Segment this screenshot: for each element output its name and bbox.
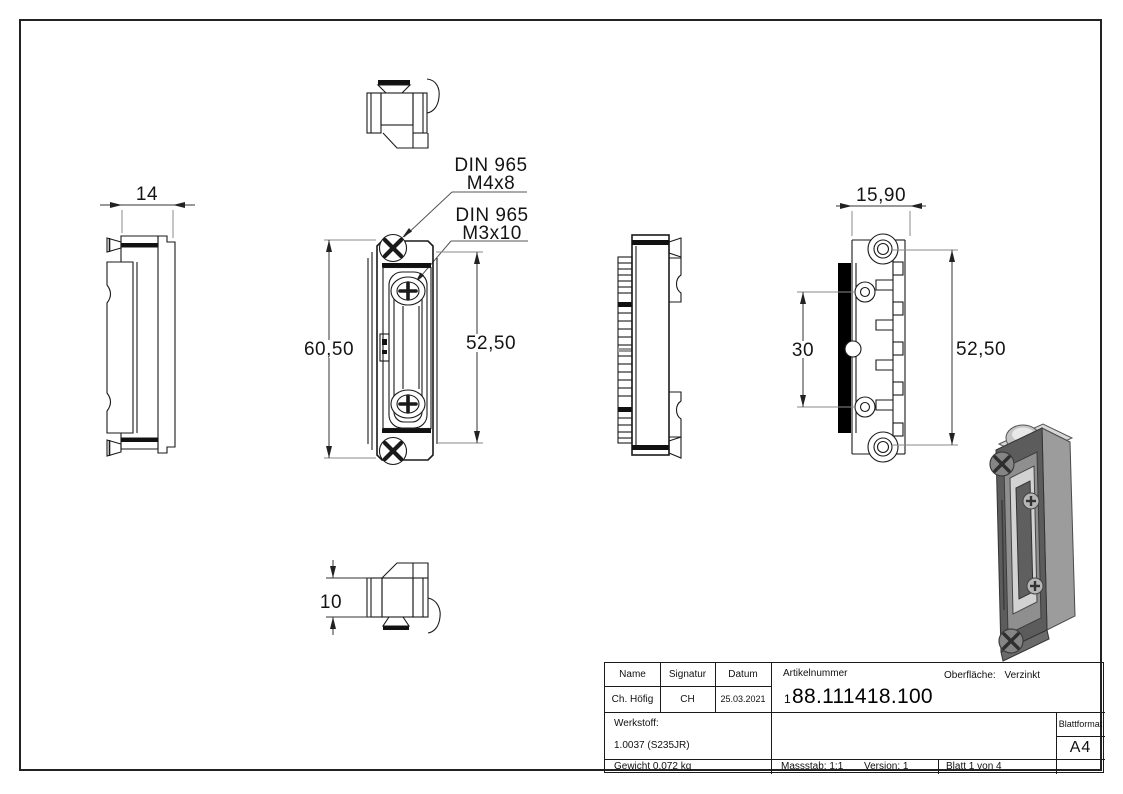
date-header: Datum [715, 663, 771, 686]
iso-screw-bottom-icon [999, 629, 1023, 653]
scale-value: Massstab: 1:1 [781, 759, 843, 774]
material-value: 1.0037 (S235JR) [614, 740, 690, 751]
side-view-left [107, 236, 175, 456]
material-label: Werkstoff: [614, 718, 659, 729]
back-view [838, 234, 905, 462]
sheet-format-value: A4 [1056, 736, 1105, 759]
drawing-page: 14 DIN 965 M4x8 DIN 965 M3x10 [0, 0, 1123, 794]
surface-label: Oberfläche: [944, 670, 996, 681]
title-block: Name Signatur Datum Ch. Höfig CH 25.03.2… [604, 662, 1104, 773]
sheet-format-label: Blattformat [1056, 712, 1105, 736]
oval-screw-bottom-icon [391, 390, 425, 418]
dim-bottom-height-label: 10 [320, 592, 342, 613]
mount-screw-bottom-icon [380, 438, 407, 465]
surface-value: Verzinkt [1004, 670, 1040, 681]
iso-screw-top-icon [990, 452, 1014, 476]
dim-front-screw-spacing-label: 52,50 [466, 333, 516, 354]
dim-back-width: 15,90 [836, 185, 926, 236]
isometric-view [990, 424, 1075, 661]
dim-bottom-height: 10 [320, 560, 371, 635]
bottom-view [367, 563, 440, 633]
dim-side-width: 14 [100, 184, 195, 238]
din-m4-line2: M4x8 [467, 173, 515, 194]
signature-header: Signatur [660, 663, 715, 686]
dim-side-width-label: 14 [136, 184, 158, 205]
side-view-right [618, 235, 681, 458]
dim-back-screw-spacing-label: 52,50 [956, 339, 1006, 360]
oval-screw-top-icon [391, 277, 425, 305]
mount-screw-top-icon [380, 235, 407, 262]
article-number-main: 88.111418.100 [792, 685, 933, 709]
dim-front-screw-spacing: 52,50 [436, 252, 518, 443]
sheet-number: Blatt 1 von 4 [946, 759, 1002, 774]
article-number-label: Artikelnummer [783, 668, 847, 679]
surface-field: Oberfläche: Verzinkt [944, 670, 1040, 681]
author-signature: CH [660, 686, 715, 712]
article-number-prefix: 1 [784, 692, 791, 706]
author-name: Ch. Höfig [605, 686, 660, 712]
dim-back-width-label: 15,90 [856, 185, 906, 206]
dim-front-height: 60,50 [302, 240, 376, 458]
dim-front-height-label: 60,50 [304, 339, 354, 360]
iso-oval-screw-bottom-icon [1027, 578, 1043, 594]
dim-back-screw-spacing: 52,50 [892, 250, 1006, 445]
version-value: Version: 1 [864, 759, 908, 774]
name-header: Name [605, 663, 660, 686]
iso-oval-screw-top-icon [1023, 493, 1039, 509]
article-number: 1 88.111418.100 [784, 685, 933, 709]
dim-back-hole-spacing-label: 30 [792, 340, 814, 361]
date-value: 25.03.2021 [715, 686, 771, 712]
top-view [367, 79, 439, 148]
weight-value: Gewicht 0.072 kg [614, 759, 691, 774]
